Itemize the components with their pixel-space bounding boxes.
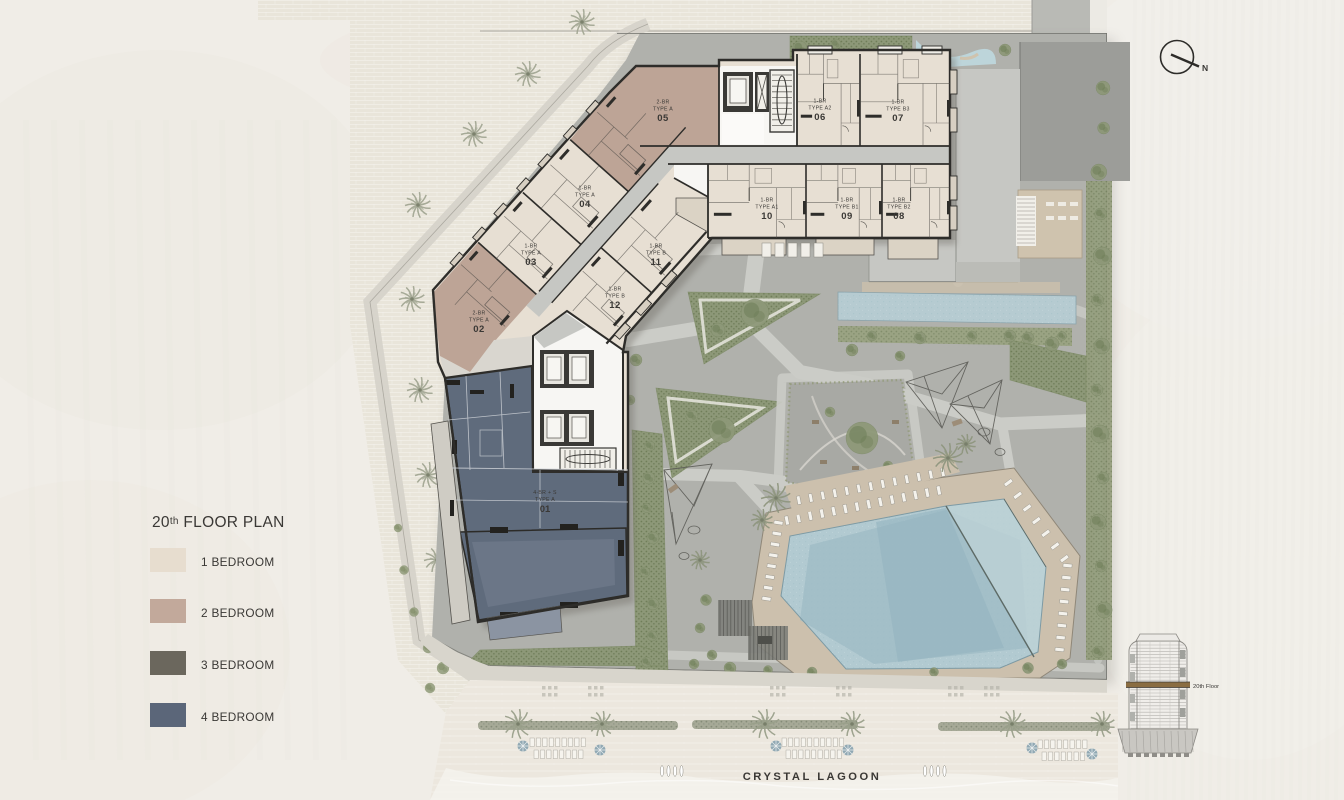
svg-text:3 BEDROOM: 3 BEDROOM	[201, 658, 275, 672]
svg-text:TYPE A2: TYPE A2	[808, 106, 831, 112]
svg-text:03: 03	[525, 257, 537, 268]
svg-text:04: 04	[579, 199, 591, 210]
svg-text:TYPE A1: TYPE A1	[755, 205, 778, 211]
svg-text:4 BEDROOM: 4 BEDROOM	[201, 710, 275, 724]
svg-text:1 BEDROOM: 1 BEDROOM	[201, 555, 275, 569]
svg-text:TYPE B: TYPE B	[605, 294, 625, 300]
svg-text:2-BR: 2-BR	[472, 311, 485, 317]
svg-text:1-BR: 1-BR	[524, 244, 537, 250]
svg-text:1-BR: 1-BR	[892, 198, 905, 204]
svg-text:2-BR: 2-BR	[656, 100, 669, 106]
svg-text:1-BR: 1-BR	[608, 287, 621, 293]
svg-text:02: 02	[473, 324, 485, 335]
svg-text:01: 01	[540, 504, 551, 515]
svg-text:TYPE B2: TYPE B2	[887, 205, 910, 211]
svg-text:11: 11	[650, 257, 661, 268]
svg-text:08: 08	[893, 211, 905, 222]
svg-text:TYPE A: TYPE A	[469, 318, 489, 324]
svg-text:12: 12	[609, 300, 621, 311]
svg-text:TYPE B: TYPE B	[646, 251, 666, 257]
svg-text:1-BR: 1-BR	[891, 100, 904, 106]
svg-text:2 BEDROOM: 2 BEDROOM	[201, 606, 275, 620]
svg-text:09: 09	[841, 211, 853, 222]
svg-text:N: N	[1202, 63, 1208, 73]
svg-text:4-BR + S: 4-BR + S	[533, 490, 557, 496]
svg-text:05: 05	[657, 113, 669, 124]
svg-text:06: 06	[814, 112, 826, 123]
svg-text:TYPE B3: TYPE B3	[886, 107, 909, 113]
svg-text:10: 10	[761, 211, 773, 222]
svg-text:1-BR: 1-BR	[813, 99, 826, 105]
svg-text:1-BR: 1-BR	[578, 186, 591, 192]
svg-text:1-BR: 1-BR	[840, 198, 853, 204]
svg-text:TYPE A: TYPE A	[521, 251, 541, 257]
svg-text:20th Floor: 20th Floor	[1193, 684, 1219, 690]
svg-text:TYPE A: TYPE A	[575, 193, 595, 199]
svg-text:1-BR: 1-BR	[649, 244, 662, 250]
svg-text:CRYSTAL LAGOON: CRYSTAL LAGOON	[743, 771, 882, 783]
svg-text:07: 07	[892, 113, 904, 124]
svg-text:1-BR: 1-BR	[760, 198, 773, 204]
svg-text:TYPE B1: TYPE B1	[835, 205, 858, 211]
svg-text:TYPE A: TYPE A	[535, 497, 555, 503]
svg-text:TYPE A: TYPE A	[653, 107, 673, 113]
